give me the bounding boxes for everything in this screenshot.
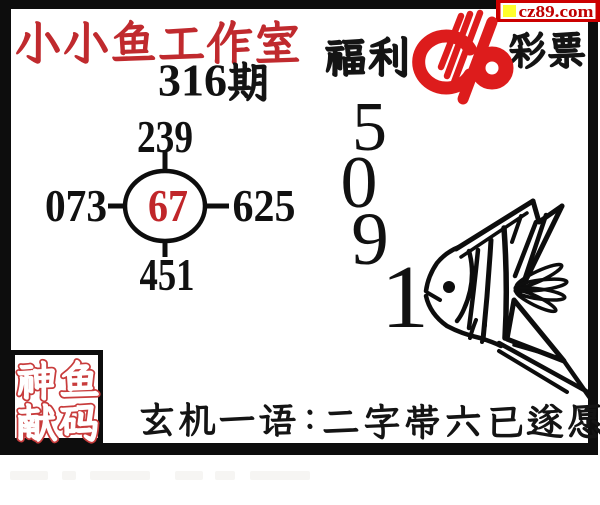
svg-text:cz89.com: cz89.com xyxy=(519,2,594,21)
svg-text:1: 1 xyxy=(381,248,429,347)
svg-text:625: 625 xyxy=(233,181,296,231)
svg-text:451: 451 xyxy=(140,250,195,300)
svg-text:073: 073 xyxy=(45,181,107,231)
svg-text:239: 239 xyxy=(137,112,193,162)
svg-text:67: 67 xyxy=(148,181,188,231)
svg-text:316: 316 xyxy=(158,55,227,106)
